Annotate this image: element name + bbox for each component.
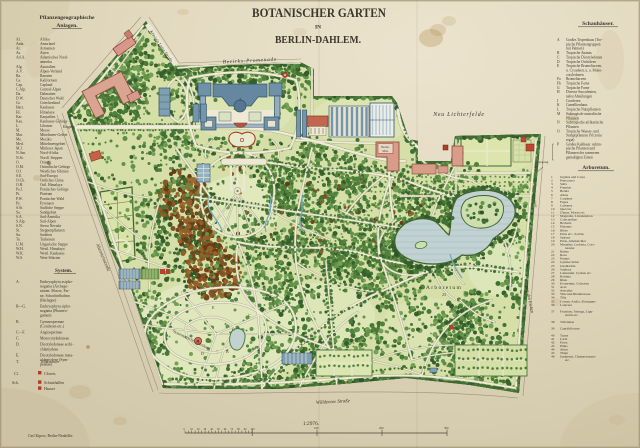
svg-text:Mittleres Japan: Mittleres Japan	[40, 147, 63, 151]
svg-text:pische Pflanzen und: pische Pflanzen und	[566, 147, 595, 151]
svg-text:Sch.: Sch.	[12, 381, 19, 385]
svg-text:Ba.: Ba.	[16, 74, 21, 78]
svg-text:Py.: Py.	[16, 201, 21, 205]
svg-text:A.V.: A.V.	[16, 69, 23, 73]
svg-text:Schauhäuser.: Schauhäuser.	[582, 21, 614, 27]
svg-text:etc.: etc.	[565, 358, 570, 362]
svg-text:Westl. Himalaya: Westl. Himalaya	[40, 247, 65, 251]
svg-text:N.Am.: N.Am.	[16, 151, 26, 155]
svg-text:Sud-Alpen: Sud-Alpen	[40, 220, 56, 224]
svg-text:Bromeliaceen: Bromeliaceen	[566, 77, 586, 81]
svg-text:Alg.: Alg.	[16, 65, 23, 69]
svg-text:Nordl. Steppen: Nordl. Steppen	[40, 156, 62, 160]
svg-text:Fa: Fa	[557, 77, 561, 81]
svg-text:St.: St.	[16, 229, 20, 233]
svg-text:Pyrenaen: Pyrenaen	[40, 201, 54, 205]
svg-text:O.Ch.: O.Ch.	[16, 179, 25, 183]
svg-text:Atl.A.: Atl.A.	[16, 56, 25, 60]
svg-text:Turkestan: Turkestan	[40, 238, 55, 242]
svg-text:Cl.: Cl.	[14, 372, 19, 376]
svg-text:Angiospermae: Angiospermae	[40, 331, 62, 335]
svg-text:nogama (Archego-: nogama (Archego-	[40, 285, 69, 289]
svg-text:C—F.: C—F.	[16, 331, 25, 335]
svg-text:Pontischer Wald: Pontischer Wald	[40, 197, 64, 201]
svg-text:Sudliche Steppe: Sudliche Steppe	[40, 206, 64, 210]
svg-text:gamen): gamen)	[40, 314, 52, 318]
svg-text:20: 20	[551, 243, 555, 247]
svg-text:O.J.: O.J.	[16, 170, 22, 174]
svg-text:37: 37	[551, 310, 555, 314]
svg-text:Da.: Da.	[16, 92, 21, 96]
svg-text:W.S.: W.S.	[16, 256, 23, 260]
svg-text:Banaten: Banaten	[40, 74, 52, 78]
svg-text:T.: T.	[16, 360, 19, 364]
svg-text:Embryophyta sipho-: Embryophyta sipho-	[40, 305, 72, 309]
svg-text:Gr.: Gr.	[16, 101, 21, 105]
svg-text:W.K.: W.K.	[16, 251, 24, 255]
svg-text:S.A.: S.A.	[16, 215, 23, 219]
svg-text:Ungarische Steppe: Ungarische Steppe	[40, 242, 68, 246]
svg-text:Sud-Europa: Sud-Europa	[40, 174, 58, 178]
svg-text:Dalmatien: Dalmatien	[40, 92, 56, 96]
svg-text:Med.: Med.	[16, 142, 24, 146]
svg-text:Kaukasus-Gebirge: Kaukasus-Gebirge	[40, 119, 68, 123]
svg-text:Dicotyledoneae archi-: Dicotyledoneae archi-	[40, 343, 74, 347]
svg-text:West-Sibirien: West-Sibirien	[40, 256, 60, 260]
svg-text:(Barlappe): (Barlappe)	[40, 298, 57, 302]
svg-text:Afrika: Afrika	[40, 38, 50, 42]
svg-text:Orient: Orient	[40, 160, 49, 164]
svg-text:Ostl. Himalaya: Ostl. Himalaya	[40, 183, 63, 187]
svg-text:O.H.: O.H.	[16, 183, 23, 187]
svg-text:Kar.: Kar.	[16, 115, 22, 119]
svg-text:A.: A.	[16, 280, 20, 284]
svg-text:Trinkwasser: Trinkwasser	[40, 360, 60, 364]
svg-text:As.: As.	[16, 51, 21, 55]
svg-text:Ostliches China: Ostliches China	[40, 179, 64, 183]
svg-text:Camellienhaus: Camellienhaus	[566, 103, 588, 107]
svg-text:S.St.: S.St.	[16, 206, 23, 210]
svg-text:Westl. Kaukasus: Westl. Kaukasus	[40, 251, 65, 255]
svg-text:Sud-Amerika: Sud-Amerika	[40, 215, 60, 219]
svg-text:Karpathen: Karpathen	[40, 115, 56, 119]
svg-text:Harz.: Harz.	[16, 106, 24, 110]
svg-text:Arboretum.: Arboretum.	[582, 165, 610, 171]
svg-text:Ostindische Gebirge: Ostindische Gebirge	[40, 165, 71, 169]
svg-text:Sierra Nevada: Sierra Nevada	[40, 224, 61, 228]
svg-text:Capland: Capland	[40, 83, 52, 87]
svg-text:Sa.: Sa.	[16, 210, 21, 214]
svg-text:D.W.: D.W.	[16, 97, 24, 101]
svg-text:Deutscher Wald: Deutscher Wald	[40, 97, 64, 101]
svg-text:gemaßigten Zonen: gemaßigten Zonen	[566, 155, 593, 159]
svg-text:A: A	[557, 38, 560, 42]
svg-text:Alpen-Vorland: Alpen-Vorland	[40, 69, 62, 73]
svg-text:Anlagen.: Anlagen.	[56, 23, 78, 29]
svg-text:Ar.: Ar.	[16, 47, 21, 51]
svg-text:Ca.: Ca.	[16, 78, 21, 82]
svg-text:Dicotyledoneae meta-: Dicotyledoneae meta-	[40, 353, 74, 357]
svg-text:46: 46	[551, 355, 555, 359]
svg-text:L.: L.	[16, 124, 19, 128]
svg-text:Tropische Dicotyledonen: Tropische Dicotyledonen	[566, 55, 603, 59]
svg-text:G: G	[557, 86, 560, 90]
svg-text:E.: E.	[16, 353, 19, 357]
svg-text:chlamydeae: chlamydeae	[40, 347, 58, 351]
svg-text:Sandgebiet: Sandgebiet	[40, 210, 56, 214]
svg-text:Central-Alpen: Central-Alpen	[40, 88, 61, 92]
svg-text:Libanon: Libanon	[40, 124, 52, 128]
svg-text:Tropische Wasser- und: Tropische Wasser- und	[566, 129, 599, 133]
svg-text:Großes Tropenhaus (Tro-: Großes Tropenhaus (Tro-	[566, 38, 603, 42]
svg-text:IN: IN	[315, 25, 321, 31]
svg-text:Me.: Me.	[16, 138, 22, 142]
svg-text:Pontisches Gebirge: Pontisches Gebirge	[40, 188, 69, 192]
svg-text:mit Palmen): mit Palmen)	[566, 47, 584, 51]
svg-text:M.: M.	[16, 129, 20, 133]
svg-text:Schutzhallen: Schutzhallen	[44, 381, 64, 385]
svg-text:N.St.: N.St.	[16, 156, 24, 160]
svg-text:BOTANISCHER GARTEN: BOTANISCHER GARTEN	[252, 5, 387, 20]
svg-text:Pinetum: Pinetum	[40, 192, 52, 196]
svg-text:nogama (Phanero-: nogama (Phanero-	[40, 309, 69, 313]
svg-text:nebst Abteilungen: nebst Abteilungen	[566, 95, 592, 99]
svg-text:P: P	[557, 142, 559, 146]
svg-text:BERLIN-DAHLEM.: BERLIN-DAHLEM.	[275, 34, 361, 46]
svg-text:Amurland: Amurland	[40, 42, 55, 46]
svg-text:C.: C.	[16, 337, 20, 341]
svg-text:Mittelmeergebiet: Mittelmeergebiet	[40, 142, 65, 146]
svg-text:Sudeten: Sudeten	[40, 233, 52, 237]
svg-text:Westliches Sibirien: Westliches Sibirien	[40, 170, 69, 174]
svg-text:Monocotyledoneae: Monocotyledoneae	[40, 337, 69, 341]
svg-text:Mexiko: Mexiko	[40, 138, 52, 142]
svg-text:Su.: Su.	[16, 233, 21, 237]
svg-text:K: K	[557, 103, 560, 107]
svg-text:Australien: Australien	[40, 65, 56, 69]
svg-text:Hi.: Hi.	[16, 110, 21, 114]
svg-text:B.: B.	[16, 320, 20, 324]
svg-text:Tropische Farne: Tropische Farne	[566, 86, 590, 90]
svg-text:Ta.: Ta.	[16, 238, 21, 242]
svg-text:Trifoliatae: Trifoliatae	[560, 320, 575, 324]
svg-text:S.Alp.: S.Alp.	[16, 220, 26, 224]
svg-text:Pflanzengeographische: Pflanzengeographische	[39, 15, 95, 21]
svg-text:O.M.: O.M.	[16, 165, 24, 169]
svg-text:Kau.: Kau.	[16, 119, 23, 123]
svg-text:Kalifornien: Kalifornien	[40, 78, 57, 82]
svg-text:W.H.: W.H.	[16, 247, 24, 251]
svg-text:Lonicera: Lonicera	[560, 303, 573, 307]
svg-text:H: H	[557, 90, 560, 94]
svg-text:O.: O.	[16, 160, 20, 164]
svg-text:B—G.: B—G.	[16, 305, 26, 309]
svg-text:System.: System.	[55, 268, 73, 274]
svg-text:Embryophyta asipho-: Embryophyta asipho-	[40, 280, 74, 284]
svg-text:Asien: Asien	[40, 51, 49, 55]
svg-text:Moore: Moore	[40, 129, 50, 133]
svg-text:N: N	[557, 121, 560, 125]
svg-text:(Coniferen etc.): (Coniferen etc.)	[40, 324, 65, 328]
svg-text:Amk.: Amk.	[16, 42, 24, 46]
svg-text:D.: D.	[16, 343, 20, 347]
svg-text:M.J.: M.J.	[16, 147, 23, 151]
svg-text:Griechenland: Griechenland	[40, 101, 60, 105]
svg-text:Hauser: Hauser	[44, 387, 56, 391]
svg-text:Himalaya: Himalaya	[40, 110, 55, 114]
svg-text:strum etc.: strum etc.	[565, 313, 579, 317]
svg-text:U.M.: U.M.	[16, 242, 24, 246]
svg-text:Steppenpflanzen: Steppenpflanzen	[40, 229, 65, 233]
svg-text:O: O	[557, 129, 560, 133]
svg-text:P.W.: P.W.	[16, 197, 23, 201]
svg-text:Subtropisch-australische: Subtropisch-australische	[566, 112, 602, 116]
svg-text:38: 38	[551, 320, 555, 324]
svg-text:Caprifoliaceae: Caprifoliaceae	[560, 327, 580, 331]
svg-text:Gymnospermae: Gymnospermae	[40, 320, 64, 324]
svg-text:Mat.: Mat.	[16, 133, 23, 137]
svg-text:regia): regia)	[566, 138, 575, 142]
svg-text:Armenien: Armenien	[40, 47, 55, 51]
svg-text:C.Alp.: C.Alp.	[16, 88, 26, 92]
svg-text:S.E.: S.E.	[16, 174, 22, 178]
svg-text:Kaukasus: Kaukasus	[40, 106, 55, 110]
svg-text:Subtropische afrikanische: Subtropische afrikanische	[566, 121, 604, 125]
svg-text:amerika: amerika	[40, 60, 52, 64]
svg-text:36: 36	[551, 303, 555, 307]
svg-text:Closets: Closets	[44, 372, 56, 376]
svg-text:Atlantisches Nord-: Atlantisches Nord-	[40, 56, 69, 60]
svg-text:Pa.J.: Pa.J.	[16, 188, 23, 192]
svg-text:Pi.: Pi.	[16, 192, 20, 196]
svg-text:Nord-Afrika: Nord-Afrika	[40, 151, 59, 155]
svg-text:Af.: Af.	[16, 38, 21, 42]
svg-text:39: 39	[551, 327, 555, 331]
svg-text:S.N.: S.N.	[16, 224, 23, 228]
svg-text:Cap.: Cap.	[16, 83, 23, 87]
